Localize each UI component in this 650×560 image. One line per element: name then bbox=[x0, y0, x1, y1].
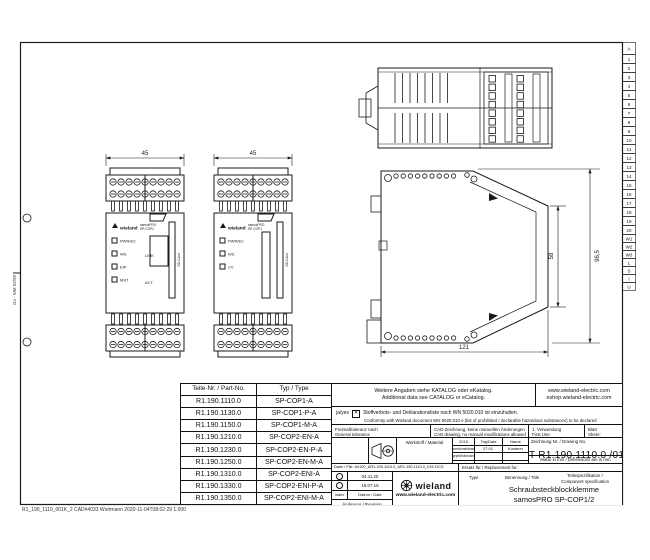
wieland-logo-icon bbox=[400, 479, 413, 492]
dim-label: 58 bbox=[549, 252, 555, 259]
din-clip bbox=[371, 196, 381, 212]
wieland-triangle-icon bbox=[112, 223, 118, 228]
latch-tab bbox=[258, 214, 274, 221]
sd-slot bbox=[277, 222, 283, 298]
part-no: R1.190.1150.0 bbox=[181, 420, 257, 431]
side-view bbox=[367, 171, 548, 343]
sd-slot-label: SD-Card bbox=[285, 253, 289, 266]
replacement-note: Ersatz für / Replacement for: bbox=[458, 463, 622, 471]
part-no: R1.190.1130.0 bbox=[181, 408, 257, 419]
conformity-note-en: Conformity with Wieland document WN 5020… bbox=[332, 418, 622, 424]
device-model: SP-COP2 bbox=[140, 227, 154, 231]
din-clip bbox=[366, 86, 378, 130]
units-note: Maße in mm / Dimensions are in mm bbox=[529, 455, 622, 463]
web-links: www.wieland-electric.com eshop.wieland-e… bbox=[535, 383, 622, 406]
dim-45-right: 45 bbox=[214, 151, 292, 166]
led-indicator bbox=[112, 277, 117, 282]
svg-text:10: 10 bbox=[626, 138, 632, 143]
file-note: Datei / File: 64100_&R1.190.1110.0_&R1.1… bbox=[331, 463, 458, 471]
revision-mark-icon bbox=[336, 473, 343, 480]
spec-de: Teilespezifikation / bbox=[549, 473, 621, 479]
svg-text:W1: W1 bbox=[626, 236, 633, 241]
dim-121: 121 bbox=[381, 310, 548, 357]
part-type: SP-COP1-P-A bbox=[257, 408, 331, 419]
svg-text:17: 17 bbox=[626, 201, 632, 206]
conformity-note-de: Stoffverbots- und Deklarationsliste nach… bbox=[363, 410, 518, 416]
svg-text:15: 15 bbox=[626, 183, 632, 188]
material: Werkstoff / Material bbox=[396, 437, 452, 463]
svg-text:W2: W2 bbox=[626, 244, 633, 249]
tolerance-note: Freimaßtoleranz nach General tolerance bbox=[331, 424, 430, 437]
svg-text:14: 14 bbox=[626, 174, 632, 179]
title-box: Type Benennung / Title Teilespezifikatio… bbox=[458, 471, 622, 505]
logo-box: wieland www.wieland-electric.com bbox=[392, 471, 458, 505]
svg-text:U: U bbox=[627, 284, 630, 289]
cad-note: CAD-Zeichnung, keine manuellen Änderunge… bbox=[430, 424, 528, 437]
dim-58: 58 bbox=[549, 206, 566, 307]
led-label: CV bbox=[228, 265, 234, 270]
sheet-no: Blatt Sheet: bbox=[584, 424, 622, 437]
revision-date-label: Datum / Date bbox=[347, 491, 392, 499]
material-label: Werkstoff / Material bbox=[397, 438, 452, 445]
tolerance-value bbox=[331, 437, 368, 463]
drawing-number-box: Zeichnung Nr. / Drawing No. T R1.190.111… bbox=[528, 437, 622, 463]
part-no: R1.190.1230.0 bbox=[181, 444, 257, 455]
projection-symbol bbox=[368, 437, 396, 463]
logo-wordmark: wieland bbox=[416, 481, 452, 491]
led-label: MST bbox=[120, 278, 129, 283]
revision-index-label: Index bbox=[332, 491, 347, 499]
web-link-main: www.wieland-electric.com bbox=[548, 388, 610, 395]
first-use: 1. Verwendung First Use: bbox=[528, 424, 584, 437]
replacement-label: Ersatz für / Replacement for: bbox=[459, 464, 622, 471]
table-row: R1.190.1230.0SP-COP2-EN-P-A bbox=[181, 443, 331, 455]
svg-text:S: S bbox=[627, 268, 630, 273]
svg-text:1: 1 bbox=[628, 57, 631, 62]
table-row: R1.190.1310.0SP-COP2-ENI-A bbox=[181, 468, 331, 480]
part-type: SP-COP1-M-A bbox=[257, 420, 331, 431]
dim-45-left: 45 bbox=[106, 151, 184, 166]
svg-text:3: 3 bbox=[628, 75, 631, 80]
svg-text:19: 19 bbox=[626, 219, 632, 224]
table-row: R1.190.1150.0SP-COP1-M-A bbox=[181, 419, 331, 431]
punch-hole-icon bbox=[23, 338, 31, 346]
led-label: WS bbox=[120, 252, 127, 257]
part-no: R1.190.1110.0 bbox=[181, 396, 257, 407]
logo-website: www.wieland-electric.com bbox=[396, 493, 456, 498]
led-indicator bbox=[112, 251, 117, 256]
checkbox-checked-icon bbox=[352, 410, 360, 418]
svg-text:W3: W3 bbox=[626, 252, 633, 257]
svg-text:7: 7 bbox=[628, 111, 631, 116]
projection-symbol-icon bbox=[371, 441, 395, 461]
table-row: R1.190.1350.0SP-COP2-ENI-M-A bbox=[181, 492, 331, 504]
sheet-footer-note: R1_190_1110_001K_2 CAD#4033 Wortmann 202… bbox=[22, 507, 186, 513]
type-label: Type bbox=[469, 475, 479, 481]
table-row: R1.190.1130.0SP-COP1-P-A bbox=[181, 407, 331, 419]
part-type: SP-COP2-ENI-A bbox=[257, 469, 331, 480]
approval-date bbox=[474, 453, 502, 460]
web-link-shop: eshop.wieland-electric.com bbox=[546, 395, 611, 402]
parts-table-header: Teile-Nr. / Part-No. Typ / Type bbox=[181, 384, 331, 395]
device-model: SP-COP1 bbox=[248, 227, 262, 231]
title-label: Benennung / Title bbox=[505, 475, 539, 481]
frame-edge-note: Gu - MM 03/98 bbox=[12, 275, 17, 306]
port-label: ACT bbox=[145, 280, 154, 285]
catalog-note-de: Weitere Angaben siehe KATALOG oder eKata… bbox=[374, 388, 492, 395]
table-row: R1.190.1330.0SP-COP2-ENI-P-A bbox=[181, 480, 331, 492]
svg-text:8: 8 bbox=[628, 120, 631, 125]
svg-text:5: 5 bbox=[628, 93, 631, 98]
latch-tab bbox=[150, 214, 166, 221]
led-indicator bbox=[220, 264, 225, 269]
sd-slot-label: SD-Card bbox=[177, 253, 181, 266]
approval-label: gezeichnet/drawn bbox=[453, 446, 474, 453]
part-type: SP-COP2-ENI-P-A bbox=[257, 481, 331, 492]
dim-label: 45 bbox=[250, 151, 257, 157]
part-no: R1.190.1210.0 bbox=[181, 432, 257, 443]
svg-text:6: 6 bbox=[628, 102, 631, 107]
approvals-date-col: Tag/Date bbox=[474, 438, 502, 445]
wieland-triangle-icon bbox=[220, 223, 226, 228]
connector-outline bbox=[262, 232, 270, 298]
approval-name bbox=[502, 453, 528, 460]
table-row: R1.190.1210.0SP-COP2-EN-A bbox=[181, 431, 331, 443]
svg-text:9: 9 bbox=[628, 129, 631, 134]
led-label: PWR/EC bbox=[120, 239, 136, 244]
din-clip bbox=[371, 300, 381, 318]
approvals-year: 2015 bbox=[453, 438, 474, 445]
led-indicator bbox=[220, 238, 225, 243]
revision-mark-icon bbox=[336, 482, 343, 489]
part-no: R1.190.1310.0 bbox=[181, 469, 257, 480]
revision-table: 04.11.20 19.07.16 Index Datum / Date Änd… bbox=[331, 471, 392, 505]
table-row: R1.190.1250.0SP-COP2-EN-M-A bbox=[181, 456, 331, 468]
led-label: PWR/EC bbox=[228, 239, 244, 244]
file-note-text: Datei / File: 64100_&R1.190.1110.0_&R1.1… bbox=[332, 464, 458, 470]
punch-hole-icon bbox=[23, 214, 31, 222]
approval-label: geprüft/checked bbox=[453, 453, 474, 460]
part-no: R1.190.1250.0 bbox=[181, 457, 257, 468]
svg-text:L: L bbox=[628, 260, 631, 265]
part-type: SP-COP2-ENI-M-A bbox=[257, 493, 331, 504]
conformity-yes-label: ja/yes bbox=[336, 410, 349, 416]
din-clip bbox=[367, 320, 381, 343]
dim-96-5: 96,5 bbox=[478, 169, 601, 343]
dim-label: 121 bbox=[459, 345, 470, 351]
approvals-name-col: Name bbox=[502, 438, 528, 445]
svg-text:18: 18 bbox=[626, 210, 632, 215]
din-clip bbox=[359, 99, 371, 117]
approvals-grid: 2015 Tag/Date Name gezeichnet/drawn 27.0… bbox=[452, 437, 528, 463]
catalog-note-en: Additional data see CATALOG or eCatalog. bbox=[382, 395, 485, 402]
drawing-sheet: A1234567891011121314151617181920W1W2W3LS… bbox=[0, 0, 650, 560]
part-no: R1.190.1330.0 bbox=[181, 481, 257, 492]
parts-table: Teile-Nr. / Part-No. Typ / Type R1.190.1… bbox=[180, 383, 331, 505]
table-row: R1.190.1110.0SP-COP1-A bbox=[181, 395, 331, 407]
revision-date: 04.11.20 bbox=[347, 472, 392, 480]
part-type: SP-COP2-EN-A bbox=[257, 432, 331, 443]
drawing-number-label: Zeichnung Nr. / Drawing No. bbox=[529, 438, 622, 445]
part-no: R1.190.1350.0 bbox=[181, 493, 257, 504]
product-title-line1: Schraubsteckblockklemme bbox=[487, 485, 621, 494]
svg-text:4: 4 bbox=[628, 84, 631, 89]
product-title-line2: samosPRO SP-COP1/2 bbox=[487, 495, 621, 504]
revision-label: Änderung / Revision bbox=[332, 500, 392, 505]
spec-en: Component specification bbox=[549, 479, 621, 485]
led-label: EIP bbox=[120, 265, 127, 270]
svg-text:A: A bbox=[627, 46, 630, 51]
led-label: WS bbox=[228, 252, 235, 257]
svg-text:16: 16 bbox=[626, 192, 632, 197]
part-type: SP-COP2-EN-M-A bbox=[257, 457, 331, 468]
approval-name: Kusterer bbox=[502, 446, 528, 453]
connector-outline bbox=[150, 236, 168, 266]
catalog-note: Weitere Angaben siehe KATALOG oder eKata… bbox=[331, 383, 535, 406]
svg-text:I: I bbox=[628, 276, 629, 281]
revision-date: 19.07.16 bbox=[347, 481, 392, 489]
svg-text:13: 13 bbox=[626, 165, 632, 170]
approval-date: 27.01. bbox=[474, 446, 502, 453]
part-type: SP-COP2-EN-P-A bbox=[257, 444, 331, 455]
svg-text:20: 20 bbox=[626, 228, 632, 233]
col-header-partno: Teile-Nr. / Part-No. bbox=[181, 384, 257, 395]
frame-strip: A1234567891011121314151617181920W1W2W3LS… bbox=[623, 43, 636, 291]
conformity-note: ja/yes Stoffverbots- und Deklarationslis… bbox=[331, 406, 622, 424]
led-indicator bbox=[220, 251, 225, 256]
device-brand: wieland bbox=[119, 226, 138, 232]
device-brand: wieland bbox=[227, 226, 246, 232]
led-indicator bbox=[112, 238, 117, 243]
sd-slot bbox=[169, 222, 175, 298]
dim-label: 96,5 bbox=[595, 250, 601, 262]
part-type: SP-COP1-A bbox=[257, 396, 331, 407]
led-indicator bbox=[112, 264, 117, 269]
svg-text:12: 12 bbox=[626, 156, 632, 161]
front-view-left: wieland samosPRO SP-COP2 PWR/EC WS EIP M… bbox=[106, 168, 184, 357]
dim-label: 45 bbox=[142, 151, 149, 157]
col-header-type: Typ / Type bbox=[257, 384, 331, 395]
title-block: Weitere Angaben siehe KATALOG oder eKata… bbox=[331, 383, 622, 505]
svg-text:11: 11 bbox=[627, 147, 632, 152]
svg-text:2: 2 bbox=[628, 66, 631, 71]
front-view-right: wieland samosPRO SP-COP1 PWR/EC WS CV SD… bbox=[214, 168, 292, 357]
